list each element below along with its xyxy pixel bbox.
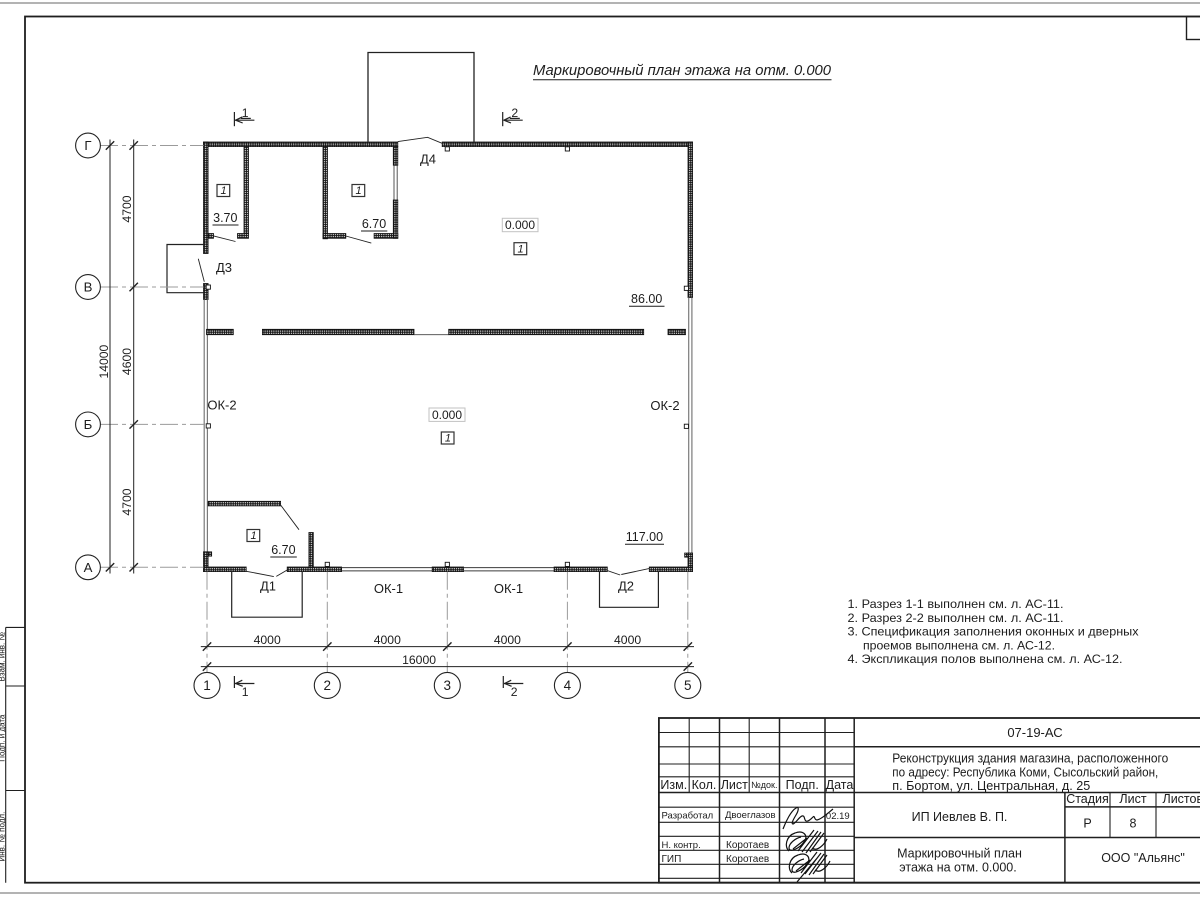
svg-text:Двоеглазов: Двоеглазов <box>725 810 776 821</box>
svg-text:Листов: Листов <box>1163 792 1200 806</box>
svg-text:ИП Иевлев В. П.: ИП Иевлев В. П. <box>912 810 1008 824</box>
svg-text:Подп. и дата: Подп. и дата <box>0 714 7 762</box>
svg-text:Разработал: Разработал <box>662 811 714 822</box>
svg-text:4000: 4000 <box>374 633 401 647</box>
svg-text:этажа на отм. 0.000.: этажа на отм. 0.000. <box>899 861 1016 875</box>
svg-text:ОК-1: ОК-1 <box>374 581 403 596</box>
svg-text:Кол.: Кол. <box>692 778 717 792</box>
svg-text:86.00: 86.00 <box>631 292 662 306</box>
svg-text:16000: 16000 <box>402 653 436 667</box>
svg-text:1: 1 <box>356 185 362 197</box>
svg-text:Коротаев: Коротаев <box>726 854 769 865</box>
svg-text:4700: 4700 <box>120 488 134 515</box>
svg-text:4: 4 <box>564 678 572 693</box>
svg-text:ОК-2: ОК-2 <box>650 398 679 413</box>
svg-text:ООО "Альянс": ООО "Альянс" <box>1101 851 1185 865</box>
svg-text:ОК-1: ОК-1 <box>494 581 523 596</box>
svg-text:6.70: 6.70 <box>362 217 386 231</box>
svg-text:Маркировочный план: Маркировочный план <box>897 847 1022 861</box>
svg-text:Реконструкция здания магазина,: Реконструкция здания магазина, расположе… <box>892 752 1168 766</box>
svg-text:3. Спецификация заполнения око: 3. Спецификация заполнения оконных и две… <box>848 625 1139 639</box>
svg-text:4700: 4700 <box>120 195 134 222</box>
svg-text:1: 1 <box>203 678 211 693</box>
svg-text:Дата: Дата <box>826 778 854 792</box>
svg-text:1: 1 <box>221 185 227 197</box>
svg-text:2: 2 <box>511 106 518 120</box>
svg-text:3: 3 <box>444 678 452 693</box>
svg-text:В: В <box>84 280 93 295</box>
svg-text:Маркировочный план этажа на от: Маркировочный план этажа на отм. 0.000 <box>533 63 831 79</box>
svg-text:5: 5 <box>684 678 692 693</box>
svg-text:Лист: Лист <box>721 778 748 792</box>
svg-text:Лист: Лист <box>1119 792 1146 806</box>
svg-text:Н. контр.: Н. контр. <box>662 840 701 851</box>
svg-text:4000: 4000 <box>614 633 641 647</box>
svg-text:Взам. инв. №: Взам. инв. № <box>0 632 7 682</box>
svg-text:1. Разрез 1-1 выполнен см. л.: 1. Разрез 1-1 выполнен см. л. АС-11. <box>848 597 1064 611</box>
svg-text:2: 2 <box>324 678 332 693</box>
svg-text:Изм.: Изм. <box>660 778 687 792</box>
svg-text:Инв. № подл.: Инв. № подл. <box>0 812 7 862</box>
svg-text:Подп.: Подп. <box>786 778 819 792</box>
svg-text:3.70: 3.70 <box>213 211 237 225</box>
svg-text:ГИП: ГИП <box>662 854 682 865</box>
svg-text:4. Экспликация полов выполнена: 4. Экспликация полов выполнена см. л. АС… <box>848 652 1123 666</box>
svg-text:0.000: 0.000 <box>505 218 535 232</box>
svg-text:0.000: 0.000 <box>432 408 462 422</box>
svg-text:2. Разрез 2-2 выполнен см. л.: 2. Разрез 2-2 выполнен см. л. АС-11. <box>848 611 1064 625</box>
svg-text:А: А <box>84 560 93 575</box>
svg-text:1: 1 <box>242 106 249 120</box>
svg-text:ОК-2: ОК-2 <box>207 398 236 413</box>
svg-text:117.00: 117.00 <box>626 530 663 544</box>
svg-text:№док.: №док. <box>751 780 777 790</box>
svg-text:Д1: Д1 <box>260 579 276 594</box>
svg-text:п. Бортом, ул. Центральная, д.: п. Бортом, ул. Центральная, д. 25 <box>892 779 1090 793</box>
svg-text:Коротаев: Коротаев <box>726 840 769 851</box>
svg-text:2: 2 <box>511 685 518 699</box>
svg-text:Р: Р <box>1083 817 1091 831</box>
svg-text:Стадия: Стадия <box>1066 792 1109 806</box>
svg-text:по адресу: Республика Коми, Сы: по адресу: Республика Коми, Сысольский р… <box>892 766 1158 780</box>
svg-text:Д4: Д4 <box>420 152 436 167</box>
svg-text:14000: 14000 <box>97 344 111 378</box>
svg-text:6.70: 6.70 <box>271 543 295 557</box>
svg-text:Г: Г <box>84 138 91 153</box>
svg-text:4000: 4000 <box>494 633 521 647</box>
svg-text:4600: 4600 <box>120 348 134 375</box>
svg-text:1: 1 <box>445 433 451 445</box>
svg-text:1: 1 <box>242 685 249 699</box>
svg-text:проемов выполнена см. л. АС-12: проемов выполнена см. л. АС-12. <box>863 638 1055 652</box>
svg-text:Б: Б <box>84 417 93 432</box>
svg-text:8: 8 <box>1130 817 1137 831</box>
svg-text:1: 1 <box>518 243 524 255</box>
svg-text:1: 1 <box>251 530 257 542</box>
svg-text:4000: 4000 <box>254 633 281 647</box>
svg-text:Д3: Д3 <box>216 260 232 275</box>
svg-text:07-19-АС: 07-19-АС <box>1007 725 1062 740</box>
svg-text:Д2: Д2 <box>618 579 634 594</box>
